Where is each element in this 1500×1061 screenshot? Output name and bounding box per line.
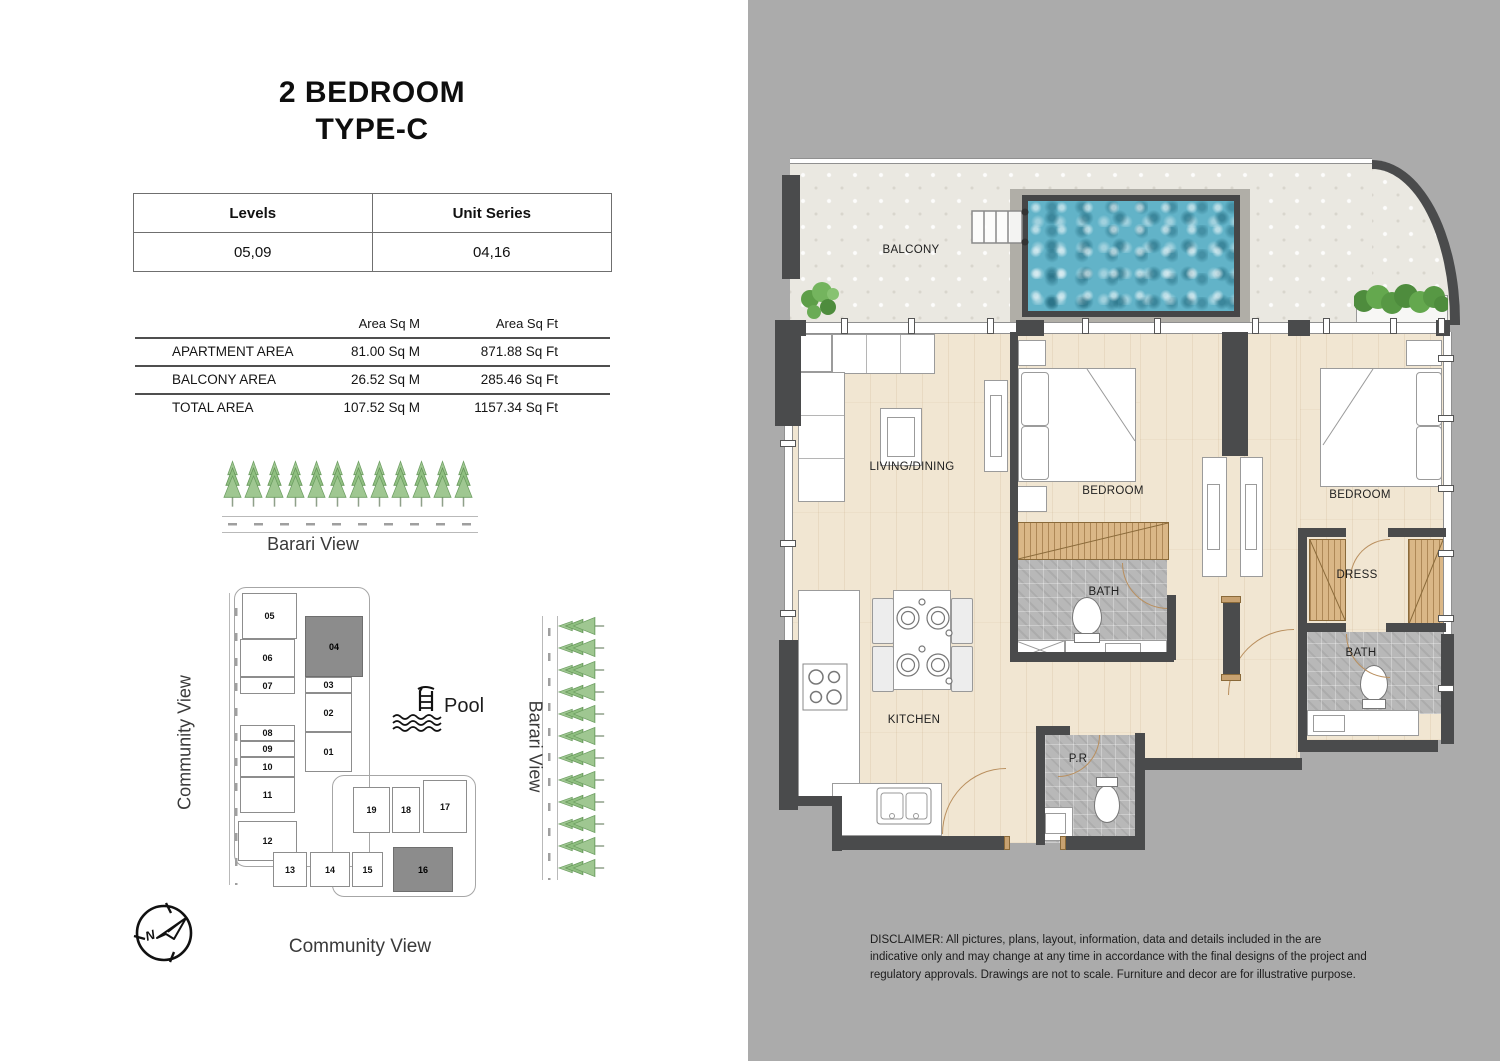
bath2-sink bbox=[1313, 715, 1345, 732]
keyplan-unit-02: 02 bbox=[305, 693, 352, 732]
keyplan-unit-04: 04 bbox=[305, 616, 363, 677]
dress-bath2-wall-left bbox=[1298, 623, 1346, 632]
bottom-wall-left bbox=[832, 836, 1004, 850]
key-plan: 05060708091011120403020119181713141516 P… bbox=[228, 585, 480, 900]
bedroom2-label: BEDROOM bbox=[1300, 489, 1420, 501]
wall-post bbox=[790, 320, 806, 336]
window-tick bbox=[987, 318, 994, 334]
table-row-balcony: BALCONY AREA 26.52 Sq M 285.46 Sq Ft bbox=[135, 367, 610, 395]
pillow bbox=[1416, 426, 1442, 480]
tv-console-inner bbox=[990, 395, 1002, 457]
closet-left bbox=[1202, 457, 1227, 577]
kitchen-sink-icon bbox=[876, 787, 932, 825]
living-bedroom1-wall bbox=[1010, 332, 1018, 662]
bath2-label: BATH bbox=[1321, 647, 1401, 659]
bath1-right-wall bbox=[1167, 595, 1176, 660]
chair bbox=[951, 598, 973, 644]
pine-tree-icon bbox=[285, 460, 306, 508]
title-line2: TYPE-C bbox=[315, 113, 428, 146]
window-tick bbox=[1438, 550, 1454, 557]
balcony-label: BALCONY bbox=[851, 244, 971, 256]
floor-plan: BALCONY bbox=[788, 155, 1462, 855]
hall-bottom-wall bbox=[1140, 758, 1302, 770]
toilet-bowl bbox=[1072, 597, 1102, 635]
window-band bbox=[790, 322, 1446, 334]
toilet-bowl bbox=[1094, 785, 1120, 823]
pine-tree-icon bbox=[411, 460, 432, 508]
pr-left-wall bbox=[1036, 726, 1045, 845]
bedroom1-label: BEDROOM bbox=[1053, 485, 1173, 497]
living-label: LIVING/DINING bbox=[852, 461, 972, 473]
road-left bbox=[229, 593, 239, 885]
stove-icon bbox=[802, 663, 848, 711]
pine-tree-icon bbox=[264, 460, 285, 508]
pine-tree-icon bbox=[558, 771, 606, 790]
disclaimer-text: DISCLAIMER: All pictures, plans, layout,… bbox=[870, 932, 1370, 985]
keyplan-unit-16: 16 bbox=[393, 847, 453, 892]
bedroom1-wardrobe bbox=[1017, 522, 1169, 560]
hedge-icon bbox=[1354, 281, 1448, 321]
left-wall-lower bbox=[779, 640, 798, 810]
pool-water bbox=[1028, 201, 1234, 311]
pine-tree-icon bbox=[327, 460, 348, 508]
wall-post bbox=[1016, 320, 1044, 336]
toilet-tank bbox=[1362, 699, 1386, 709]
pool-icon bbox=[390, 685, 442, 733]
tree-row-right bbox=[560, 616, 616, 882]
keyplan-unit-10: 10 bbox=[240, 757, 295, 777]
pillow bbox=[1021, 372, 1049, 426]
pr-label: P.R bbox=[1018, 753, 1138, 765]
table-row-total: TOTAL AREA 107.52 Sq M 1157.34 Sq Ft bbox=[135, 395, 610, 421]
door-post bbox=[1004, 836, 1010, 850]
keyplan-unit-01: 01 bbox=[305, 732, 352, 772]
coffee-table bbox=[880, 408, 922, 466]
bath2-bottom-wall bbox=[1298, 740, 1438, 752]
pine-tree-icon bbox=[558, 617, 606, 636]
window-tick bbox=[1438, 318, 1445, 334]
step-mask bbox=[779, 805, 839, 850]
sofa-chaise bbox=[798, 372, 845, 502]
plant-icon bbox=[796, 279, 844, 325]
pine-tree-icon bbox=[348, 460, 369, 508]
pine-tree-icon bbox=[558, 705, 606, 724]
road-top bbox=[222, 516, 478, 533]
pine-tree-icon bbox=[558, 749, 606, 768]
window-tick bbox=[1252, 318, 1259, 334]
keyplan-unit-09: 09 bbox=[240, 741, 295, 757]
keyplan-unit-17: 17 bbox=[423, 780, 467, 833]
levels-unit-table: Levels Unit Series 05,09 04,16 bbox=[133, 193, 612, 272]
kitchen-label: KITCHEN bbox=[854, 714, 974, 726]
keyplan-unit-13: 13 bbox=[273, 852, 307, 887]
place-settings-icon bbox=[891, 593, 953, 688]
keyplan-unit-06: 06 bbox=[240, 639, 295, 677]
keyplan-unit-03: 03 bbox=[305, 677, 352, 693]
window-tick bbox=[780, 540, 796, 547]
closet-inner bbox=[1207, 484, 1220, 550]
keyplan-unit-11: 11 bbox=[240, 777, 295, 813]
nightstand bbox=[1406, 340, 1442, 366]
pine-tree-icon bbox=[558, 859, 606, 878]
pine-tree-icon bbox=[558, 727, 606, 746]
pine-tree-icon bbox=[306, 460, 327, 508]
wall-post bbox=[1288, 320, 1310, 336]
hall-wall-lower bbox=[1223, 602, 1240, 674]
window-tick bbox=[908, 318, 915, 334]
left-window-wall bbox=[784, 426, 793, 640]
pine-tree-icon bbox=[558, 793, 606, 812]
wing-left-wall bbox=[1298, 528, 1307, 752]
pine-tree-icon bbox=[558, 837, 606, 856]
dress-bath2-wall-right bbox=[1386, 623, 1446, 632]
keyplan-unit-07: 07 bbox=[240, 677, 295, 694]
window-tick bbox=[1082, 318, 1089, 334]
nightstand bbox=[1015, 486, 1047, 512]
door-post bbox=[1221, 596, 1241, 603]
barari-view-top-label: Barari View bbox=[233, 534, 393, 555]
compass-icon: N bbox=[125, 893, 203, 971]
sofa-corner bbox=[798, 334, 832, 372]
keyplan-unit-18: 18 bbox=[392, 787, 420, 833]
plan-panel: BALCONY bbox=[748, 0, 1500, 1061]
closet-right bbox=[1240, 457, 1263, 577]
toilet-icon bbox=[1094, 777, 1120, 823]
title-line1: 2 BEDROOM bbox=[279, 76, 465, 109]
levels-value: 05,09 bbox=[134, 233, 373, 271]
pine-tree-icon bbox=[243, 460, 264, 508]
pine-tree-icon bbox=[369, 460, 390, 508]
door-post bbox=[1060, 836, 1066, 850]
sofa bbox=[832, 334, 935, 374]
toilet-tank bbox=[1096, 777, 1118, 787]
levels-header: Levels bbox=[134, 194, 373, 233]
pool-label: Pool bbox=[444, 695, 484, 718]
sqft-header: Area Sq Ft bbox=[420, 316, 558, 331]
page-title: 2 BEDROOM TYPE-C bbox=[134, 74, 610, 148]
keyplan-unit-08: 08 bbox=[240, 725, 295, 741]
bottom-wall-right bbox=[1066, 836, 1142, 850]
toilet-tank bbox=[1074, 633, 1100, 643]
svg-text:N: N bbox=[143, 926, 157, 943]
nightstand bbox=[1018, 340, 1046, 366]
keyplan-unit-14: 14 bbox=[310, 852, 350, 887]
community-view-left-label: Community View bbox=[175, 663, 196, 823]
pillow bbox=[1021, 426, 1049, 480]
hall-wall-upper bbox=[1222, 332, 1248, 456]
balcony-top-wall bbox=[790, 158, 1372, 164]
pine-tree-icon bbox=[453, 460, 474, 508]
keyplan-unit-15: 15 bbox=[352, 852, 383, 887]
window-tick bbox=[841, 318, 848, 334]
pr-sink-basin bbox=[1045, 813, 1066, 834]
pine-tree-icon bbox=[558, 661, 606, 680]
bath1-bottom-wall bbox=[1010, 652, 1174, 662]
pr-right-wall bbox=[1135, 733, 1145, 850]
pine-tree-icon bbox=[558, 639, 606, 658]
window-tick bbox=[780, 440, 796, 447]
window-tick bbox=[1438, 685, 1454, 692]
tree-row-top bbox=[222, 460, 478, 518]
window-tick bbox=[1390, 318, 1397, 334]
window-tick bbox=[1438, 415, 1454, 422]
pine-tree-icon bbox=[432, 460, 453, 508]
bath1-label: BATH bbox=[1044, 586, 1164, 598]
dress-label: DRESS bbox=[1317, 569, 1397, 581]
pine-tree-icon bbox=[558, 683, 606, 702]
community-view-bottom-label: Community View bbox=[260, 936, 460, 958]
sqm-header: Area Sq M bbox=[295, 316, 420, 331]
area-table-header: Area Sq M Area Sq Ft bbox=[135, 314, 610, 339]
window-tick bbox=[1154, 318, 1161, 334]
dress-top-wall-right bbox=[1388, 528, 1446, 537]
pine-tree-icon bbox=[390, 460, 411, 508]
window-tick bbox=[1438, 355, 1454, 362]
tv-console bbox=[984, 380, 1008, 472]
window-tick bbox=[1438, 485, 1454, 492]
dress-top-wall-left bbox=[1300, 528, 1346, 537]
window-tick bbox=[780, 610, 796, 617]
chair bbox=[951, 646, 973, 692]
barari-view-right-label: Barari View bbox=[525, 667, 546, 827]
area-table: Area Sq M Area Sq Ft APARTMENT AREA 81.0… bbox=[135, 314, 610, 421]
pool-ladder-icon bbox=[968, 201, 1030, 251]
pine-tree-icon bbox=[558, 815, 606, 834]
brochure-page: 2 BEDROOM TYPE-C Levels Unit Series 05,0… bbox=[0, 0, 1500, 1061]
balcony-left-wall bbox=[782, 175, 800, 279]
keyplan-unit-19: 19 bbox=[353, 787, 390, 833]
right-window-wall bbox=[1443, 332, 1452, 634]
door-post bbox=[1221, 674, 1241, 681]
closet-inner bbox=[1245, 484, 1257, 550]
window-tick bbox=[1323, 318, 1330, 334]
toilet-icon bbox=[1072, 597, 1102, 643]
keyplan-unit-05: 05 bbox=[242, 593, 297, 639]
pine-tree-icon bbox=[222, 460, 243, 508]
table-row-apartment: APARTMENT AREA 81.00 Sq M 871.88 Sq Ft bbox=[135, 339, 610, 367]
unit-series-value: 04,16 bbox=[373, 233, 612, 271]
coffee-table-inner bbox=[887, 417, 915, 457]
window-tick bbox=[1438, 615, 1454, 622]
keyplan-units: 05060708091011120403020119181713141516 bbox=[228, 585, 480, 900]
unit-series-header: Unit Series bbox=[373, 194, 612, 233]
